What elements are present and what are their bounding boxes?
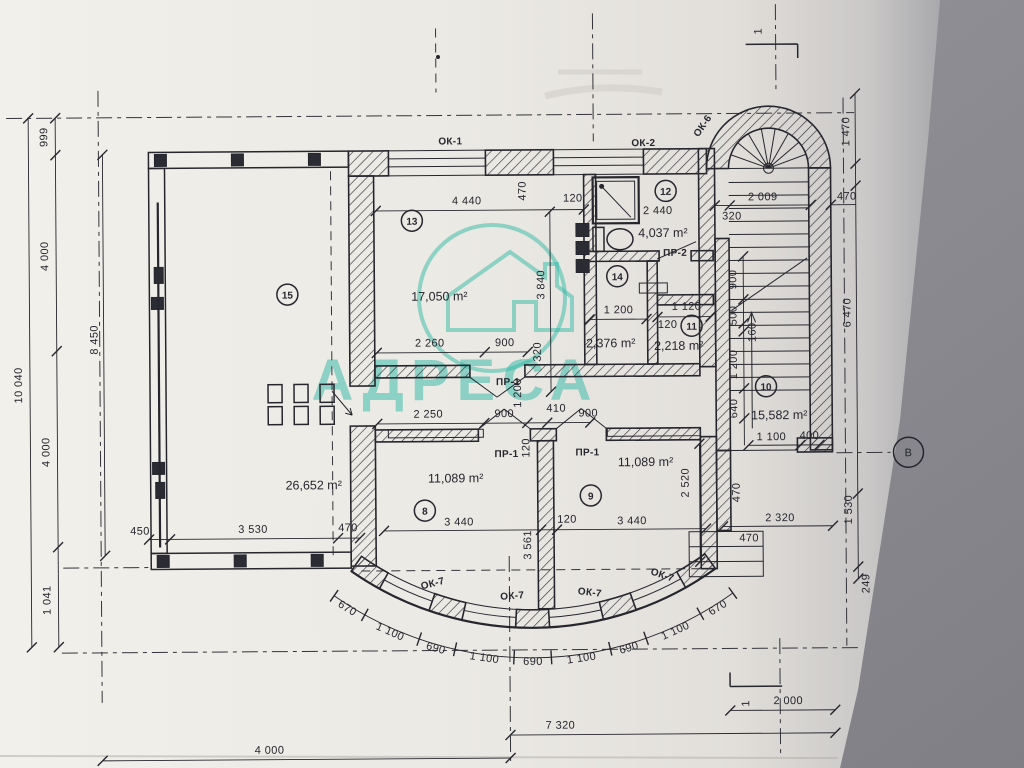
wall-pier (643, 149, 706, 174)
dim-label: 320 (532, 342, 544, 362)
plumbing-stack (576, 241, 589, 254)
room-area: 17,050 m² (411, 289, 467, 303)
dim-label: 2 000 (773, 695, 803, 707)
wall-corridor-north-a (375, 365, 470, 378)
wall-corridor-south-a (375, 429, 478, 442)
room-area: 15,582 m² (751, 408, 807, 422)
room-number-label: 12 (660, 187, 672, 198)
wall-corridor-south-b (530, 429, 556, 441)
dim-label: 120 (520, 438, 532, 458)
dim-label: 1 100 (757, 431, 787, 443)
plumbing-stack (576, 259, 589, 272)
dim-label: 3 561 (522, 530, 534, 560)
axis-marker-label: В (905, 447, 913, 459)
dim-label: 470 (739, 532, 759, 544)
plumbing-stack (576, 223, 589, 236)
dim-label: 320 (722, 210, 742, 222)
dim-label: 2 320 (765, 512, 795, 524)
dim-label: 900 (495, 337, 515, 349)
room-area: 11,089 m² (428, 471, 483, 485)
dim-label: 470 (837, 191, 857, 203)
dim-label: 6 470 (841, 298, 853, 328)
room-area: 4,037 m² (638, 226, 687, 240)
dim-label: 4 000 (255, 745, 285, 757)
wall-left-upper (349, 176, 375, 386)
floor-plan-photo: АДРЕСА (0, 0, 1024, 768)
dim-label: 1 200 (604, 304, 634, 316)
window-label: ОК-7 (500, 590, 525, 603)
wall-bath-south2 (691, 251, 713, 261)
dim-label: 8 450 (89, 325, 101, 355)
dim-label: 999 (38, 127, 50, 147)
dim-label: 4 000 (40, 437, 52, 467)
dim-label: 1 120 (672, 301, 702, 313)
dim-label: 3 440 (617, 515, 647, 527)
room-number-label: 15 (282, 291, 294, 302)
room-number-label: 11 (686, 322, 697, 333)
wall-stair-east (808, 168, 832, 450)
dim-label: 1 041 (41, 585, 53, 615)
room-area: 11,089 m² (618, 455, 673, 469)
door-label: ПР-1 (494, 449, 518, 460)
dim-label: 1 530 (843, 495, 855, 525)
dim-label: 2 260 (415, 337, 445, 349)
dim-label: 249 (860, 574, 872, 594)
dim-label: 1 200 (728, 350, 740, 380)
wall-pier (485, 150, 553, 175)
dim-label: 900 (494, 408, 514, 420)
terrace-post (154, 154, 166, 166)
dim-label: 2 009 (748, 191, 778, 203)
room-area: 2,218 m² (654, 339, 703, 353)
dim-label: 2 250 (413, 408, 443, 420)
room-area: 2,376 m² (586, 336, 635, 350)
dim-label: 900 (578, 407, 598, 419)
dim-label: 500 (727, 306, 739, 326)
ink-dot (436, 55, 440, 59)
terrace-post (311, 554, 323, 566)
room-number-label: 13 (406, 217, 418, 228)
wall-pier (348, 151, 388, 176)
door-label: ПР-1 (496, 377, 520, 388)
section-label: 1 (740, 700, 752, 707)
dim-label: 4 440 (452, 195, 482, 207)
dim-label: 410 (546, 403, 566, 415)
dim-label: 2 440 (643, 205, 673, 217)
terrace-post (231, 154, 243, 166)
shower-drain (599, 184, 604, 189)
wall-left-lower (350, 426, 376, 566)
dim-label: 120 (557, 514, 577, 526)
room-number-label: 9 (588, 491, 594, 502)
dim-label: 3 530 (238, 524, 268, 536)
wall-corridor-south-c (606, 428, 700, 441)
section-label: 1 (753, 28, 765, 35)
terrace-post (234, 555, 246, 567)
terrace-post (157, 555, 169, 567)
dim-label: 160 (747, 322, 759, 342)
dim-label: 2 520 (680, 468, 692, 498)
dim-label: 640 (728, 399, 740, 419)
dim-label: 470 (731, 483, 743, 503)
room-number-label: 8 (422, 507, 428, 518)
room-number-label: 14 (612, 272, 624, 283)
dim-label: 120 (658, 319, 678, 331)
dim-label: 7 320 (546, 720, 576, 732)
bay-pier (515, 609, 549, 628)
wall-right-lower (700, 437, 717, 569)
dim-label: 400 (800, 430, 820, 442)
dim-label: 470 (517, 181, 529, 201)
dim-label: 690 (523, 656, 543, 668)
dim-label: 4 000 (39, 241, 51, 271)
door-label: ПР-2 (663, 248, 687, 259)
door-label: ПР-1 (575, 447, 599, 458)
dim-label: 120 (563, 193, 583, 205)
window-label: ОК-1 (438, 136, 462, 147)
dim-label: 470 (338, 522, 358, 534)
wall-lobby (716, 450, 731, 530)
room-area: 26,652 m² (286, 478, 342, 492)
wall-bath-south (584, 251, 659, 262)
dim-label: 3 840 (535, 270, 547, 300)
dim-label: 3 440 (444, 516, 474, 528)
terrace-post (308, 153, 320, 165)
window-label: ОК-2 (631, 138, 655, 149)
room-number-label: 10 (760, 382, 772, 393)
dim-label: 10 040 (13, 367, 25, 403)
dim-label: 900 (727, 270, 739, 290)
dim-label: 450 (130, 526, 150, 538)
dim-label: 1 470 (840, 117, 852, 147)
